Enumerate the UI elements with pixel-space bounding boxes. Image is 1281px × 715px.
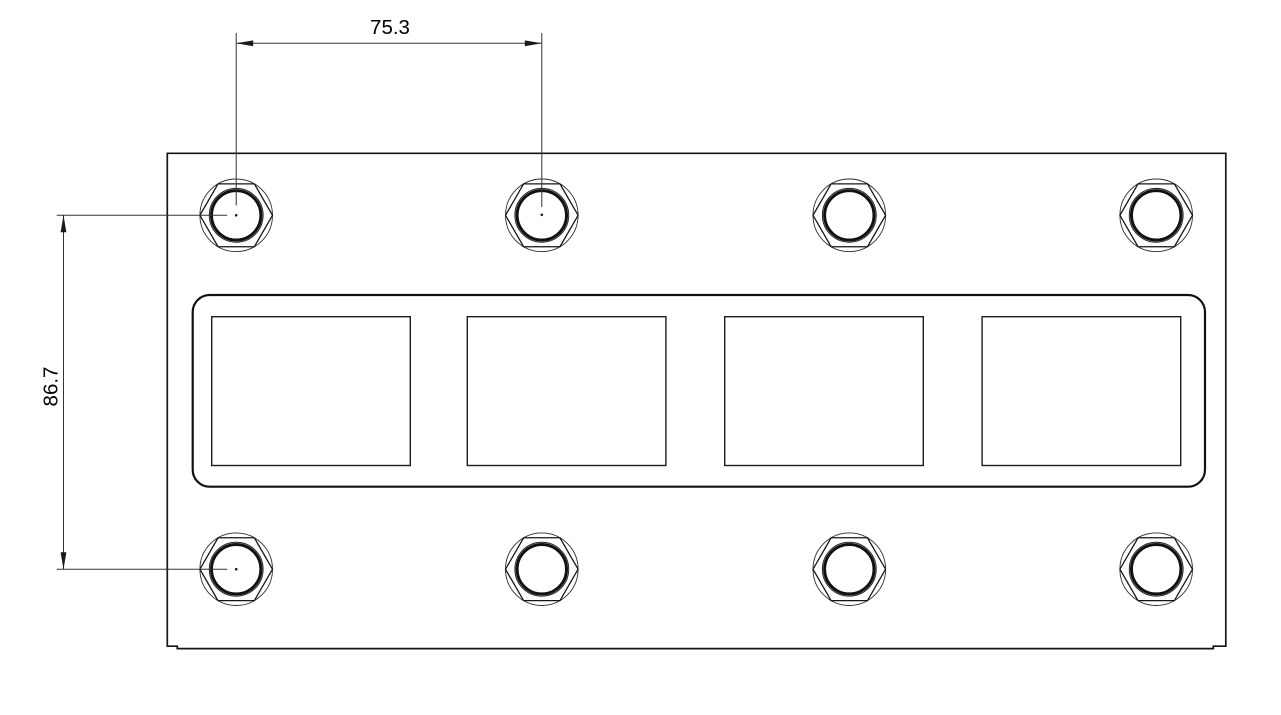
dimension-horizontal: 75.3 — [236, 16, 542, 207]
hex-nut-hole-r2-c3 — [813, 533, 886, 606]
hex-nut-hole-r1-c4 — [1120, 179, 1193, 252]
switch-cutout-1 — [212, 317, 411, 466]
dimension-label-vertical: 86.7 — [40, 367, 63, 407]
switch-cutout-4 — [982, 317, 1181, 466]
hex-nut-hole-r2-c4 — [1120, 533, 1193, 606]
dimension-label-horizontal: 75.3 — [370, 16, 410, 39]
cutout-frame — [193, 295, 1205, 487]
hole-center-dots-group — [235, 214, 543, 571]
hex-nut-hole-r1-c3 — [813, 179, 886, 252]
arrowhead-down-icon — [61, 552, 67, 569]
arrowhead-left-icon — [236, 40, 253, 46]
switch-cutouts-group — [212, 317, 1181, 466]
switch-cutout-2 — [467, 317, 666, 466]
hex-nut-holes-group — [200, 179, 1193, 606]
arrowhead-right-icon — [525, 40, 542, 46]
panel-drawing-canvas: 75.3 86.7 — [0, 0, 1281, 715]
hole-center-dot — [235, 214, 238, 217]
hex-nut-hole-r2-c2 — [506, 533, 579, 606]
switch-cutout-3 — [725, 317, 924, 466]
panel-plate-outline — [167, 153, 1226, 648]
hole-center-dot — [541, 214, 544, 217]
hole-center-dot — [235, 568, 238, 571]
arrowhead-up-icon — [61, 215, 67, 232]
dimension-vertical: 86.7 — [40, 215, 228, 569]
